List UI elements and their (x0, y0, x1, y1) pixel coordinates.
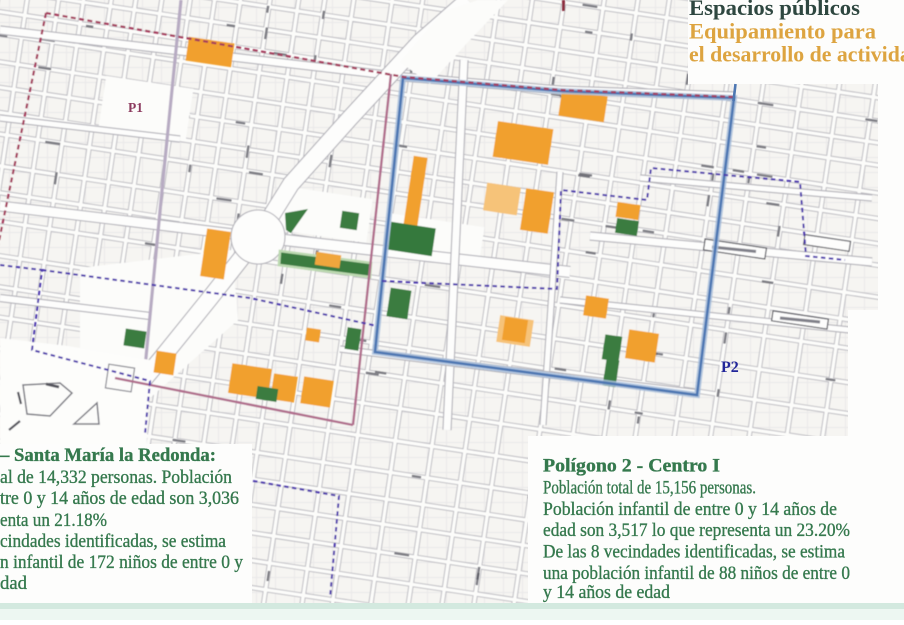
svg-text:De las 8 vecindades identifica: De las 8 vecindades identificadas, se es… (543, 542, 846, 563)
svg-text:una población infantil de 88 n: una población infantil de 88 niños de en… (543, 563, 850, 584)
svg-text:– Santa María la Redonda:: – Santa María la Redonda: (0, 445, 216, 466)
svg-text:el desarrollo de actividades: el desarrollo de actividades (689, 42, 904, 67)
svg-text:al de 14,332 personas. Poblaci: al de 14,332 personas. Población (0, 467, 232, 488)
svg-text:Equipamiento para: Equipamiento para (689, 19, 876, 44)
svg-text:Espacios públicos: Espacios públicos (689, 0, 860, 20)
svg-text:y 14 años de edad: y 14 años de edad (543, 582, 670, 603)
svg-text:n infantil de 172 niños de ent: n infantil de 172 niños de entre 0 y (0, 552, 243, 573)
svg-text:P1: P1 (128, 100, 143, 115)
svg-text:edad son 3,517 lo que represen: edad son 3,517 lo que representa un 23.2… (543, 520, 850, 541)
svg-text:dad: dad (0, 573, 27, 594)
svg-text:P2: P2 (721, 359, 739, 376)
svg-text:Polígono 2 - Centro I: Polígono 2 - Centro I (543, 456, 720, 477)
svg-text:cindades identificadas, se est: cindades identificadas, se estima (0, 531, 227, 552)
svg-text:Población infantil de entre 0: Población infantil de entre 0 y 14 años … (543, 499, 837, 520)
svg-text:enta un 21.18%: enta un 21.18% (0, 510, 107, 531)
svg-text:tre 0 y 14 años de edad son 3,: tre 0 y 14 años de edad son 3,036 (0, 488, 239, 509)
svg-text:Población total de 15,156 pers: Población total de 15,156 personas. (543, 478, 756, 499)
